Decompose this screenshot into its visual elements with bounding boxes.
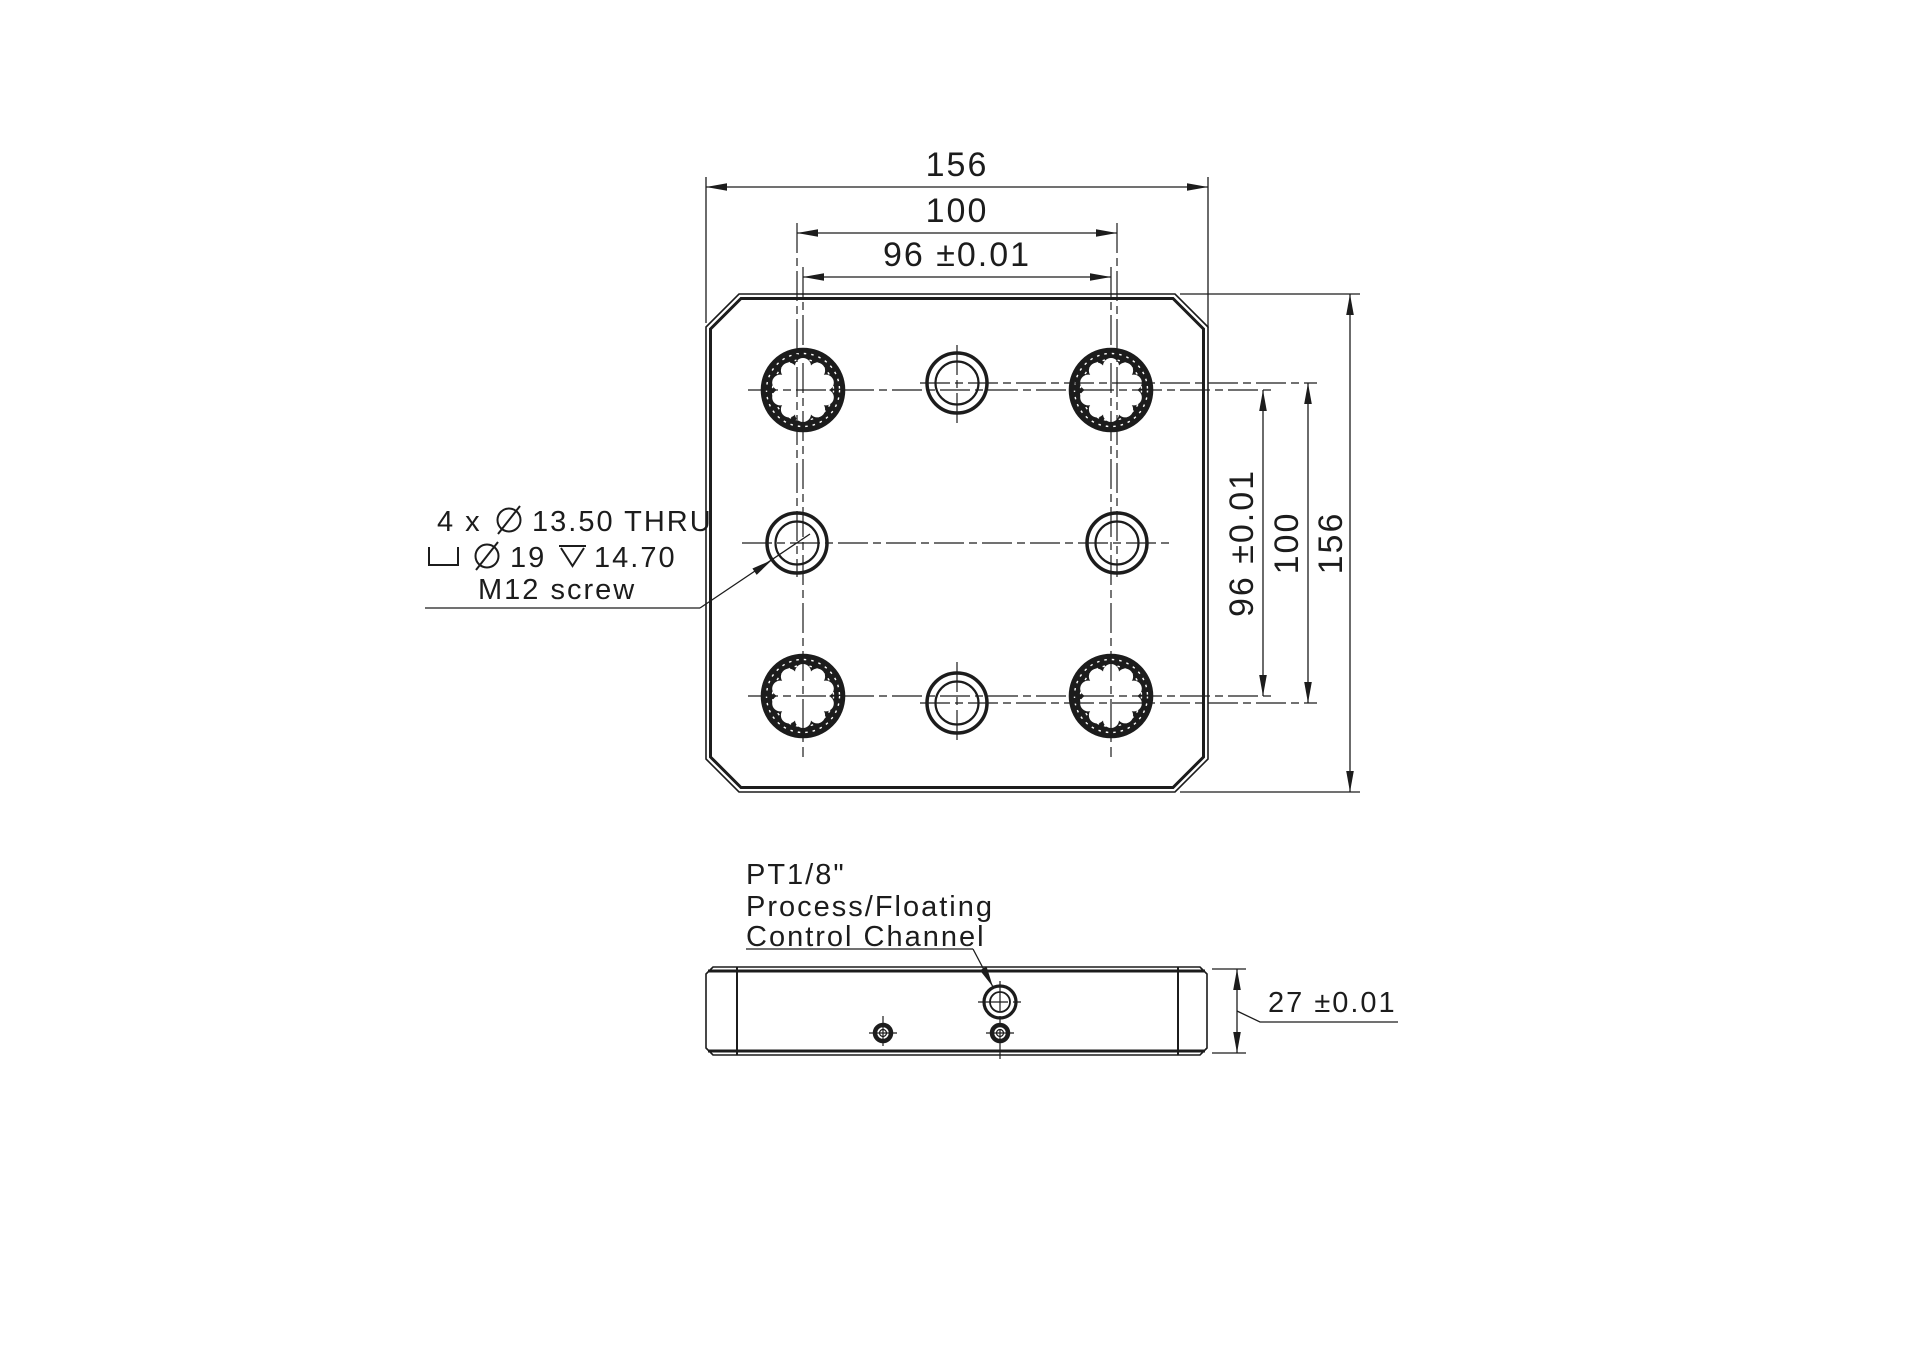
side-outline-outer xyxy=(706,967,1207,1055)
callout-thru-value: 13.50 THRU xyxy=(532,506,713,538)
callout-screw-note: M12 screw xyxy=(478,574,636,606)
diameter-icon xyxy=(476,542,499,570)
port-label-line1: PT1/8" xyxy=(746,859,846,891)
dim-thickness: 27 ±0.01 xyxy=(1212,969,1398,1053)
diameter-icon xyxy=(498,506,521,534)
counterbore-icon xyxy=(429,547,458,565)
plate-top-view: 156 100 96 ±0.01 96 ±0.01 100 xyxy=(425,146,1360,792)
dim-height-hole-circle: 100 xyxy=(1268,383,1312,703)
callout-count-prefix: 4 x xyxy=(437,506,482,538)
dim-height-lock-holes: 96 ±0.01 xyxy=(1223,390,1267,696)
dim-height-hole-circle-text: 100 xyxy=(1268,512,1306,575)
port-callout: PT1/8" Process/Floating Control Channel xyxy=(746,859,996,989)
technical-drawing: 156 100 96 ±0.01 96 ±0.01 100 xyxy=(0,0,1920,1358)
depth-icon xyxy=(559,546,586,566)
cbore-callout: 4 x 13.50 THRU 19 14.70 M12 screw xyxy=(425,506,810,608)
dim-width-lock-holes-text: 96 ±0.01 xyxy=(883,236,1031,274)
dim-width-hole-circle: 100 xyxy=(797,192,1117,237)
port-label-line2: Process/Floating xyxy=(746,891,994,923)
dim-width-hole-circle-text: 100 xyxy=(926,192,989,230)
drawing-canvas: 156 100 96 ±0.01 96 ±0.01 100 xyxy=(0,0,1920,1358)
plate-side-view: PT1/8" Process/Floating Control Channel … xyxy=(706,859,1398,1062)
dim-height-overall-text: 156 xyxy=(1312,512,1350,575)
callout-cbore-depth: 14.70 xyxy=(594,542,677,574)
dim-thickness-text: 27 ±0.01 xyxy=(1268,987,1397,1019)
dim-height-lock-holes-text: 96 ±0.01 xyxy=(1223,469,1261,617)
dim-width-lock-holes: 96 ±0.01 xyxy=(803,236,1111,281)
callout-cbore-diameter: 19 xyxy=(510,542,546,574)
port-label-line3: Control Channel xyxy=(746,921,986,953)
dim-width-overall-text: 156 xyxy=(926,146,989,184)
